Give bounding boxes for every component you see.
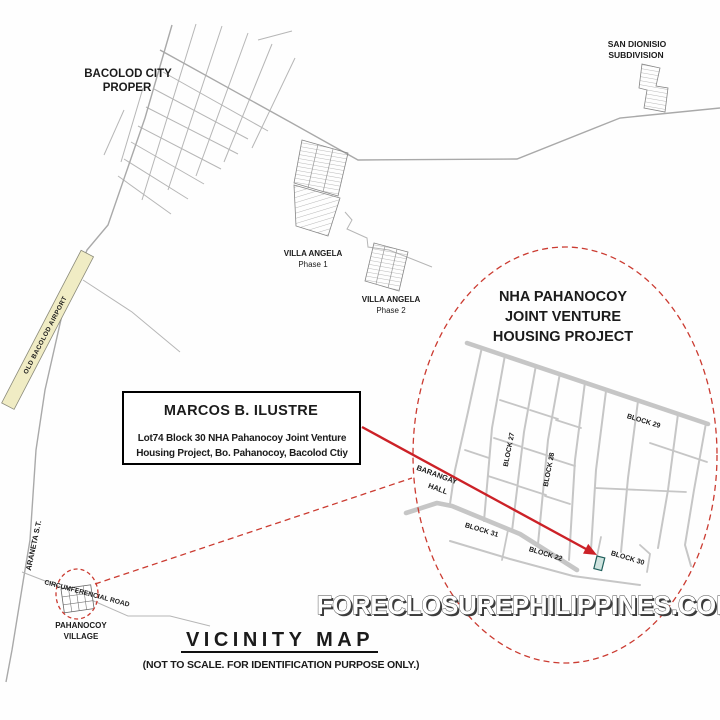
watermark-text: FORECLOSUREPHILIPPINES.COM [317,592,720,620]
focus-connector-line [95,478,412,584]
map-title-block: VICINITY MAP (NOT TO SCALE. FOR IDENTIFI… [143,629,420,671]
san-dionisio-area [639,64,668,112]
block27-label: BLOCK 27 [503,432,516,467]
watermark: FORECLOSUREPHILIPPINES.COM FORECLOSUREPH… [317,592,720,622]
nha-project-label-2: JOINT VENTURE [505,309,621,325]
villa-angela-phase1-area [294,140,348,236]
pahanocoy-village-label-2: VILLAGE [64,632,99,641]
villa-angela1-label-2: Phase 1 [298,260,328,269]
villa-angela-phase2-area [365,243,408,291]
villa-angela2-label-2: Phase 2 [376,306,406,315]
info-box-title: MARCOS B. ILUSTRE [164,403,318,419]
location-arrow [362,427,597,555]
araneta-street-label: ARANETA S.T. [24,520,43,572]
map-subtitle: (NOT TO SCALE. FOR IDENTIFICATION PURPOS… [143,659,420,671]
east-highway-road [160,50,720,160]
pahanocoy-village-label-1: PAHANOCOY [55,621,107,630]
info-box-line2: Housing Project, Bo. Pahanocoy, Bacolod … [136,448,348,459]
lot-marker [594,556,605,571]
san-dionisio-label-2: SUBDIVISION [608,50,663,60]
bacolod-city-label-1: BACOLOD CITY [84,68,172,80]
info-box: MARCOS B. ILUSTRE Lot74 Block 30 NHA Pah… [123,392,360,464]
nha-project-label-1: NHA PAHANOCOY [499,289,627,305]
block30-label: BLOCK 30 [610,550,645,567]
vicinity-map-canvas: OLD BACOLOD AIRPORT [0,0,720,720]
san-dionisio-label-1: SAN DIONISIO [608,39,667,49]
villa-angela2-label-1: VILLA ANGELA [362,295,421,304]
housing-project-streets [406,343,708,585]
villa-angela1-label-1: VILLA ANGELA [284,249,343,258]
block29-label: BLOCK 29 [626,413,661,430]
nha-project-label-3: HOUSING PROJECT [493,329,633,345]
old-airport-strip: OLD BACOLOD AIRPORT [2,250,94,409]
info-box-line1: Lot74 Block 30 NHA Pahanocoy Joint Ventu… [138,433,347,444]
old-airport-label: OLD BACOLOD AIRPORT [23,295,69,375]
map-title: VICINITY MAP [186,629,374,651]
vicinity-map-page: OLD BACOLOD AIRPORT [0,0,720,720]
airport-branch-road [83,280,180,352]
bacolod-city-street-grid [104,24,295,214]
bacolod-city-label-2: PROPER [103,82,152,94]
barangay-hall-label-2: HALL [427,481,449,496]
